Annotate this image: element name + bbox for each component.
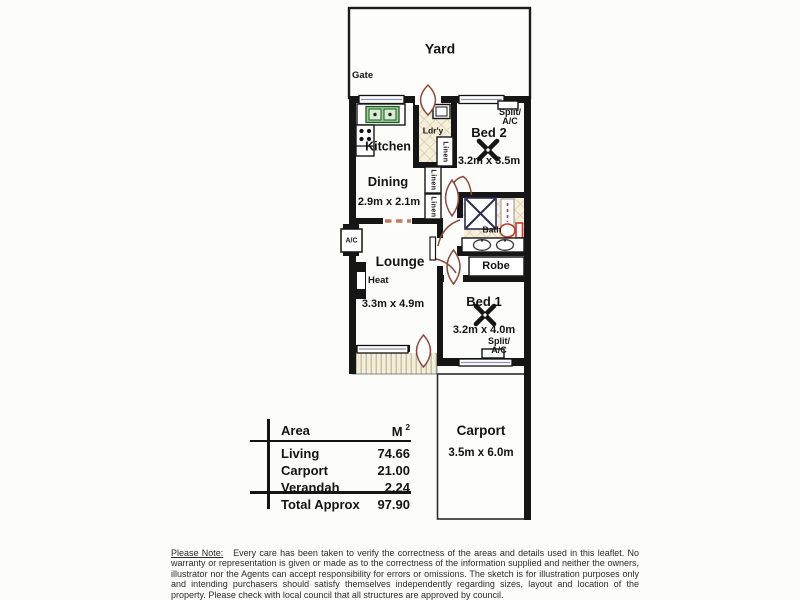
- linen-label-c: Linen: [429, 196, 436, 217]
- table-header-row: Area M2: [250, 423, 412, 439]
- row-living-value: 74.66: [377, 446, 410, 461]
- lounge-window-icon: [357, 346, 408, 354]
- toilet-icon: [500, 223, 523, 238]
- linen-label-b: Linen: [429, 169, 436, 190]
- kitchen-label: Kitchen: [365, 140, 411, 153]
- robe-label: Robe: [482, 261, 510, 273]
- lounge-door-panel: [430, 237, 436, 260]
- disclaimer-prefix: Please Note:: [171, 548, 223, 558]
- row-living-label: Living: [281, 446, 319, 461]
- total-value: 97.90: [377, 497, 410, 512]
- carport-label: Carport: [457, 424, 506, 438]
- table-row: Carport 21.00: [250, 463, 412, 479]
- lounge-ac-label: A/C: [345, 237, 357, 244]
- bed2-dims: 3.2m x 3.5m: [458, 156, 520, 168]
- sink-icon: [366, 107, 399, 123]
- bed2-label: Bed 2: [471, 126, 506, 140]
- lounge-dims: 3.3m x 4.9m: [362, 299, 424, 311]
- row-carport-label: Carport: [281, 463, 328, 478]
- total-label: Total Approx: [281, 497, 360, 512]
- bed1-window-icon: [459, 359, 512, 366]
- disclaimer-body: Every care has been taken to verify the …: [171, 548, 639, 600]
- dining-label: Dining: [368, 175, 408, 189]
- bed1-split-ac-label: Split/ A/C: [488, 337, 510, 356]
- row-carport-value: 21.00: [377, 463, 410, 478]
- bed1-label: Bed 1: [466, 295, 501, 309]
- yard-label: Yard: [425, 42, 455, 57]
- floorplan-page: Yard Gate Kitchen Dining 2.9m x 2.1m Ldr…: [0, 0, 800, 600]
- gate-label: Gate: [352, 71, 373, 81]
- table-total-row: Total Approx 97.90: [250, 497, 412, 513]
- disclaimer-text: Please Note: Every care has been taken t…: [171, 548, 639, 600]
- laundry-label: Ldr'y: [423, 127, 443, 136]
- bed2-split-ac-label: Split/ A/C: [499, 108, 521, 127]
- heat-label: Heat: [368, 276, 389, 286]
- hall-door-icon: [446, 180, 459, 216]
- towel-rail-icon: [501, 199, 514, 226]
- laundry-tub-icon: [433, 105, 450, 119]
- bed1-split-ac-line2: A/C: [488, 346, 510, 355]
- table-total-rule: [250, 491, 411, 494]
- table-header-rule: [250, 440, 411, 442]
- bed2-window-icon: [459, 96, 504, 104]
- kitchen-window-icon: [359, 96, 404, 104]
- lounge-label: Lounge: [376, 255, 425, 269]
- dining-dims: 2.9m x 2.1m: [358, 197, 420, 209]
- table-header-area: Area: [281, 423, 310, 438]
- bed2-split-ac-line2: A/C: [499, 117, 521, 126]
- heater-icon: [349, 262, 366, 299]
- linen-label-a: Linen: [441, 141, 448, 162]
- table-header-unit: M2: [392, 423, 410, 439]
- vanity-icon: [462, 238, 524, 252]
- bath-label: Bath: [483, 226, 502, 235]
- table-row: Living 74.66: [250, 446, 412, 462]
- carport-dims: 3.5m x 6.0m: [448, 447, 513, 459]
